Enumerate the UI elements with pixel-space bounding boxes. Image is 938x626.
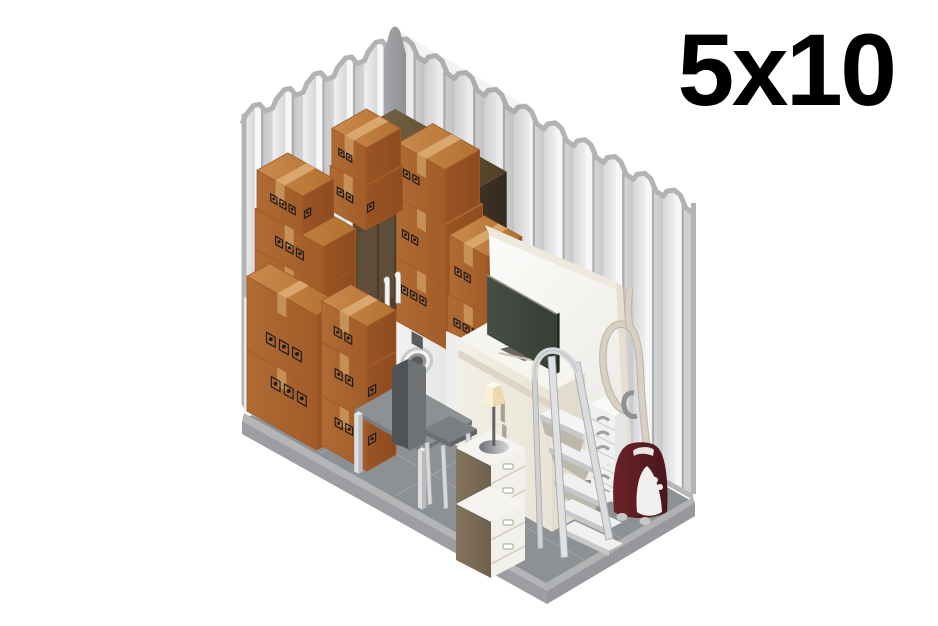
svg-text:5x10: 5x10: [678, 13, 895, 127]
